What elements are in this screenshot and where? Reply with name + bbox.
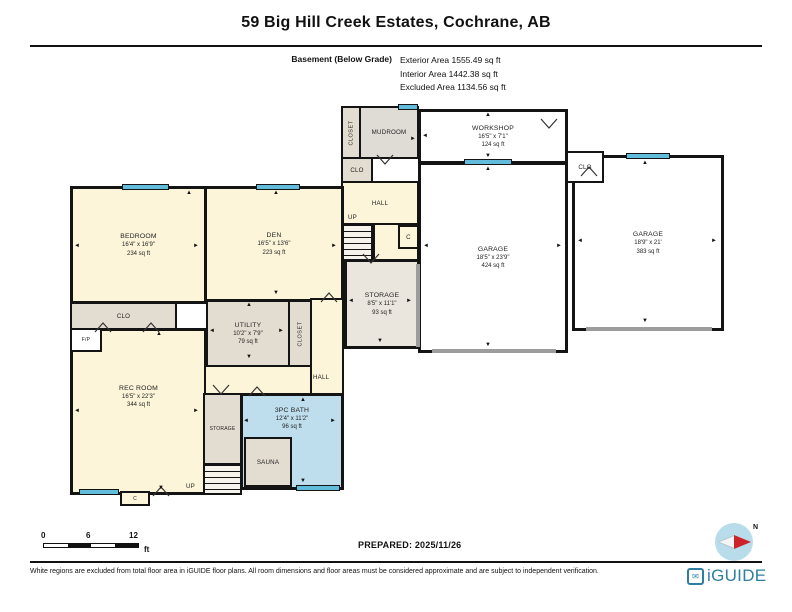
room-sauna: SAUNA <box>244 437 292 487</box>
room-label: GARAGE <box>633 230 663 239</box>
room-area: 93 sq ft <box>365 309 400 317</box>
window-bath <box>296 485 340 491</box>
room-area: 96 sq ft <box>275 423 309 431</box>
footer-disclaimer: White regions are excluded from total fl… <box>30 568 650 575</box>
dimension-arrow-icon: ◄ <box>74 408 80 414</box>
dimension-arrow-icon: ◄ <box>422 133 428 139</box>
iguide-logo: ✉ iGUIDE <box>687 566 766 586</box>
room-label: STORAGE <box>210 426 236 432</box>
room-label: CLOSET <box>348 120 354 145</box>
window-bedroom <box>122 184 169 190</box>
room-area: 223 sq ft <box>258 249 291 257</box>
grey-wall-storage <box>416 264 420 347</box>
dimension-arrow-icon: ▼ <box>485 342 491 348</box>
room-clo-center: CLO <box>341 157 373 183</box>
room-label: MUDROOM <box>372 129 407 136</box>
room-label: CLOSET <box>297 321 303 346</box>
dimension-arrow-icon: ▼ <box>300 478 306 484</box>
room-mudroom: MUDROOM <box>359 106 419 159</box>
dimension-arrow-icon: ► <box>193 408 199 414</box>
room-label: F/P <box>82 337 90 343</box>
dimension-arrow-icon: ▲ <box>485 166 491 172</box>
window-garage-second <box>626 153 670 159</box>
window-rec-room <box>79 489 119 495</box>
dimension-arrow-icon: ▼ <box>485 153 491 159</box>
dimension-arrow-icon: ▼ <box>158 485 164 491</box>
room-area: 344 sq ft <box>119 401 158 409</box>
room-rec-room: REC ROOM16'5" x 22'3"344 sq ft <box>70 328 207 495</box>
window-workshop <box>464 159 512 165</box>
dimension-arrow-icon: ► <box>330 418 336 424</box>
dimension-arrow-icon: ◄ <box>209 328 215 334</box>
dimension-arrow-icon: ► <box>331 243 337 249</box>
dimension-arrow-icon: ► <box>193 243 199 249</box>
room-dims: 16'5" x 13'6" <box>258 240 291 248</box>
door-swing <box>376 154 394 165</box>
room-c-bottom: C <box>120 491 150 506</box>
room-storage-center: STORAGE8'5" x 11'1"93 sq ft <box>344 259 420 349</box>
dimension-arrow-icon: ▼ <box>273 290 279 296</box>
stairs-up-label: UP <box>348 214 357 221</box>
room-dims: 18'9" x 21' <box>633 239 663 247</box>
room-label: WORKSHOP <box>472 124 514 133</box>
dimension-arrow-icon: ▲ <box>246 302 252 308</box>
dimension-arrow-icon: ► <box>406 298 412 304</box>
dimension-arrow-icon: ► <box>711 238 717 244</box>
dimension-arrow-icon: ▲ <box>300 397 306 403</box>
room-clo-bedroom: CLO <box>70 302 177 330</box>
door-swing <box>212 384 230 395</box>
prepared-date: PREPARED: 2025/11/26 <box>358 540 461 550</box>
door-swing <box>362 253 380 264</box>
floor-plan: GARAGE18'9" x 21'383 sq ft CLO WORKSHOP1… <box>0 0 792 612</box>
room-area: 383 sq ft <box>633 248 663 256</box>
room-label: STORAGE <box>365 291 400 300</box>
dimension-arrow-icon: ▼ <box>642 318 648 324</box>
dimension-arrow-icon: ▲ <box>186 190 192 196</box>
room-label: UTILITY <box>233 321 263 330</box>
room-closet-utility: CLOSET <box>288 300 312 367</box>
stairs-left <box>203 463 242 495</box>
north-label: N <box>753 524 758 531</box>
room-dims: 16'4" x 16'9" <box>120 241 157 249</box>
dimension-arrow-icon: ◄ <box>348 298 354 304</box>
dimension-arrow-icon: ▼ <box>377 338 383 344</box>
room-garage-main: GARAGE18'5" x 23'9"424 sq ft <box>418 162 568 353</box>
room-label: SAUNA <box>257 459 279 466</box>
room-c-center: C <box>398 225 419 249</box>
room-label: GARAGE <box>477 245 510 254</box>
room-label: C <box>406 234 411 241</box>
door-swing <box>94 322 112 333</box>
room-closet-top: CLOSET <box>341 106 361 159</box>
room-label: DEN <box>258 231 291 240</box>
room-area: 424 sq ft <box>477 262 510 270</box>
dimension-arrow-icon: ▲ <box>273 190 279 196</box>
hall-lower-label: HALL <box>313 374 329 381</box>
room-dims: 16'5" x 22'3" <box>119 393 158 401</box>
room-area: 234 sq ft <box>120 250 157 258</box>
door-swing <box>320 292 338 303</box>
compass-needle-red <box>734 535 751 549</box>
dimension-arrow-icon: ▲ <box>156 331 162 337</box>
garage-door-second <box>586 327 712 331</box>
dimension-arrow-icon: ◄ <box>577 238 583 244</box>
door-swing <box>248 386 266 397</box>
dimension-arrow-icon: ► <box>410 136 416 142</box>
dimension-arrow-icon: ► <box>556 243 562 249</box>
room-dims: 16'5" x 7'1" <box>472 133 514 141</box>
room-den: DEN16'5" x 13'6"223 sq ft <box>204 186 344 302</box>
dimension-arrow-icon: ◄ <box>243 418 249 424</box>
room-label: REC ROOM <box>119 384 158 393</box>
scale-tick-0: 0 <box>41 531 45 540</box>
scale-tick-6: 6 <box>86 531 90 540</box>
room-label: 3PC BATH <box>275 406 309 415</box>
room-label: HALL <box>372 200 388 207</box>
room-dims: 10'2" x 7'9" <box>233 330 263 338</box>
scale-unit: ft <box>144 545 149 554</box>
door-swing <box>580 166 598 177</box>
dimension-arrow-icon: ◄ <box>423 243 429 249</box>
room-area: 79 sq ft <box>233 338 263 346</box>
dimension-arrow-icon: ▼ <box>246 354 252 360</box>
iguide-logo-icon: ✉ <box>687 568 704 585</box>
room-area: 124 sq ft <box>472 141 514 149</box>
room-dims: 8'5" x 11'1" <box>365 300 400 308</box>
iguide-logo-text: iGUIDE <box>707 566 766 586</box>
compass-needle-white <box>719 536 734 548</box>
window-mudroom <box>398 104 418 110</box>
room-bedroom: BEDROOM16'4" x 16'9"234 sq ft <box>70 186 207 304</box>
door-swing <box>540 118 558 129</box>
room-dims: 18'5" x 23'9" <box>477 254 510 262</box>
room-label: CLO <box>350 167 363 174</box>
room-storage-left: STORAGE <box>203 393 242 465</box>
dimension-arrow-icon: ▲ <box>485 112 491 118</box>
room-label: BEDROOM <box>120 232 157 241</box>
stairs-left-up-label: UP <box>186 483 195 490</box>
garage-door-main <box>432 349 556 353</box>
scale-tick-12: 12 <box>129 531 138 540</box>
dimension-arrow-icon: ◄ <box>74 243 80 249</box>
dimension-arrow-icon: ► <box>278 328 284 334</box>
room-label: CLO <box>117 313 130 320</box>
scale-bar <box>43 543 139 548</box>
room-label: C <box>133 496 137 502</box>
room-dims: 12'4" x 11'2" <box>275 415 309 423</box>
footer-divider <box>30 561 762 563</box>
dimension-arrow-icon: ▲ <box>642 160 648 166</box>
